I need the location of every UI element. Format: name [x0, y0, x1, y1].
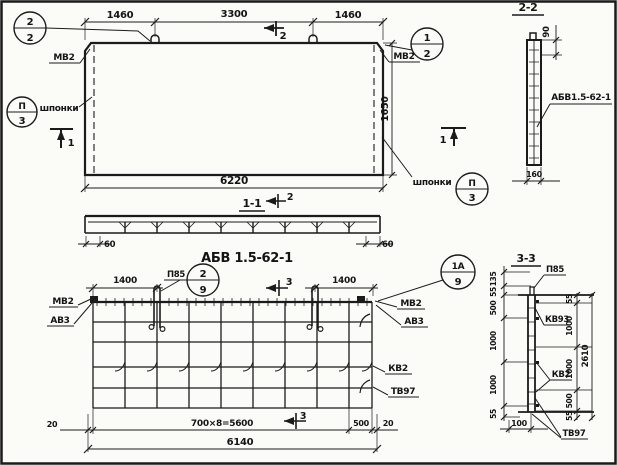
callout-den: 2 [424, 49, 431, 60]
arrow-up-icon [450, 129, 458, 139]
dim-55: 55 [489, 287, 498, 297]
label-text: АВ3 [404, 317, 423, 327]
dim-500: 500 [489, 301, 498, 316]
section-mark-1-right: 1 [440, 128, 466, 146]
dim-text: 90 [542, 26, 552, 38]
section-mark-2: 2 [266, 192, 293, 208]
callout-2-9: 2 9 [187, 264, 219, 296]
loop-hook [149, 325, 154, 330]
rebar-plan-view: 1400 1400 П85 2 9 3 1А 9 МВ2 [47, 255, 475, 453]
mark-label: 2 [280, 31, 287, 42]
callout-num: П [18, 102, 25, 112]
strip-walls [528, 295, 535, 412]
callout-leader [14, 28, 150, 41]
ext-lines-top [85, 18, 383, 40]
label-text: МВ2 [53, 53, 74, 63]
dim-spacing: 700×8=5600 [191, 419, 253, 429]
label-text: МВ2 [393, 52, 414, 62]
callout-den: 9 [200, 285, 207, 296]
callout-den: 3 [469, 193, 476, 204]
dim-55: 55 [489, 409, 498, 419]
dim-6140: 6140 [227, 437, 254, 448]
mark-label: 3 [286, 277, 292, 288]
label-mv2-left: МВ2 [49, 297, 91, 307]
dim-1000: 1000 [489, 331, 498, 351]
drawing-sheet: 1460 3300 1460 2 2 1 2 МВ2 МВ2 [0, 0, 617, 465]
loop-hook [160, 327, 165, 332]
dim-160: 160 [512, 167, 560, 185]
label-kv2: КВ2 [373, 364, 412, 374]
mark-label: 2 [287, 192, 293, 203]
dim-text: 60 [382, 240, 394, 250]
key-joint-dashed-lines [94, 45, 374, 174]
dim-1000: 1000 [489, 375, 498, 395]
dim-55: 55 [565, 294, 574, 304]
dim-20-right: 20 [383, 419, 394, 428]
keys-callout-left: П 3 шпонки [7, 97, 92, 127]
lifting-loop-icon [307, 286, 323, 331]
loop-hook [318, 327, 323, 332]
plan-view: 1460 3300 1460 2 2 1 2 МВ2 МВ2 [7, 9, 488, 205]
panel-drawing: 1460 3300 1460 2 2 1 2 МВ2 МВ2 [0, 0, 617, 465]
section-mark-1-left: 1 [50, 129, 75, 149]
section-1-1-title: 1-1 [243, 197, 262, 210]
arrow-left-icon [266, 197, 276, 205]
label-leader [534, 275, 566, 288]
dim-6220: 6220 [220, 175, 248, 187]
edge-bar-hooks [360, 314, 370, 393]
grid-vertical-bars [93, 302, 372, 408]
label-panel-mark: АБВ1.5-62-1 [537, 93, 612, 127]
arrow-up-icon [57, 130, 65, 140]
arrow-left-icon [284, 417, 294, 425]
panel-outline [85, 43, 383, 175]
label-mv2-right: МВ2 [375, 299, 425, 309]
ext-lines-left [504, 272, 531, 417]
label-text: ТВ97 [391, 387, 415, 397]
callout-num: 2 [200, 269, 207, 280]
label-text: КВ2 [388, 364, 408, 374]
dim-2610: 2610 [581, 344, 591, 367]
loop-hook [307, 325, 312, 330]
dim-20-left: 20 [47, 420, 58, 429]
label-mv2-left: МВ2 [49, 49, 90, 63]
dim-1460-left: 1460 [107, 10, 134, 21]
section-2-2-view: 2-2 90 АБВ1.5-62-1 160 [512, 1, 612, 185]
section-2-2-title: 2-2 [519, 1, 538, 14]
arrow-left-icon [264, 24, 274, 32]
callout-den: 2 [27, 33, 34, 44]
keys-callout-right: П 3 шпонки [382, 137, 488, 205]
section-1-1-view: 2 1-1 60 60 [78, 192, 394, 250]
lifting-loop-icon [530, 287, 534, 295]
dim-3300: 3300 [221, 9, 248, 20]
label-text: КВ93 [545, 315, 569, 325]
dim-55: 55 [565, 411, 574, 421]
dim-text: 60 [104, 240, 116, 250]
label-text: МВ2 [400, 299, 421, 309]
label-text: КВ2 [552, 370, 571, 380]
mark-label: 1 [440, 135, 447, 146]
label-leader [537, 104, 612, 127]
callout-num: 1 [424, 33, 431, 44]
dim-1400-left: 1400 [113, 276, 137, 286]
callout-num: 2 [27, 17, 34, 28]
callout-leader [385, 44, 443, 50]
label-tv97: ТВ97 [532, 398, 588, 439]
corner-plate-left [90, 296, 98, 303]
label-text: П85 [546, 265, 564, 275]
label-loop-p85: П85 [161, 270, 188, 291]
dim-1400-right: 1400 [332, 276, 356, 286]
dim-1460-right: 1460 [335, 10, 362, 21]
dim-60-left: 60 [78, 236, 116, 250]
dim-text: 160 [526, 170, 543, 179]
lifting-hook-icon [151, 35, 317, 43]
corner-plate-right [357, 296, 365, 303]
callout-den: 3 [19, 116, 26, 127]
dim-60-right: 60 [356, 236, 394, 250]
label-leader [161, 280, 188, 291]
label-kv93: КВ93 [535, 308, 570, 325]
panel-mark-title: АБВ 1.5-62-1 [201, 251, 293, 266]
dim-1650: 1650 [380, 96, 391, 122]
dim-500: 500 [353, 419, 370, 428]
label-text: АБВ1.5-62-1 [551, 93, 611, 103]
callout-num: П [468, 179, 475, 189]
section-mark-3-top: 3 [266, 277, 292, 296]
strip-void-fillets [119, 222, 355, 228]
section-mark-2-top: 2 [264, 21, 287, 42]
mark-label: 3 [300, 411, 306, 422]
dim-90: 90 [541, 25, 562, 60]
section-3-3-title: 3-3 [517, 252, 536, 265]
strip-bottom-ends [85, 216, 380, 233]
dim-100: 100 [500, 412, 548, 433]
grid-horizontal-bars [93, 322, 372, 408]
strip-webs [125, 222, 349, 233]
label-text: АВ3 [50, 316, 69, 326]
dim-135: 135 [489, 272, 498, 287]
label-keys-left: шпонки [40, 104, 79, 114]
label-p85: П85 [534, 265, 566, 288]
label-keys-right: шпонки [413, 178, 452, 188]
dim-500: 500 [565, 394, 574, 409]
callout-1a-9: 1А 9 [378, 255, 475, 301]
label-text: МВ2 [52, 297, 73, 307]
section-mark-3-bottom: 3 [284, 411, 306, 429]
dim-text: 100 [511, 419, 528, 428]
lifting-hook-icon [530, 33, 536, 40]
label-mv2-right: МВ2 [380, 50, 420, 62]
label-text: ТВ97 [563, 429, 586, 439]
mark-label: 1 [68, 138, 75, 149]
arrow-left-icon [266, 284, 276, 292]
callout-num: 1А [452, 262, 465, 272]
callout-den: 9 [455, 277, 462, 288]
section-3-3-view: 3-3 135 55 500 1000 1000 55 55 1000 1000… [489, 252, 595, 439]
label-text: П85 [167, 270, 185, 280]
label-tv97: ТВ97 [373, 387, 419, 397]
